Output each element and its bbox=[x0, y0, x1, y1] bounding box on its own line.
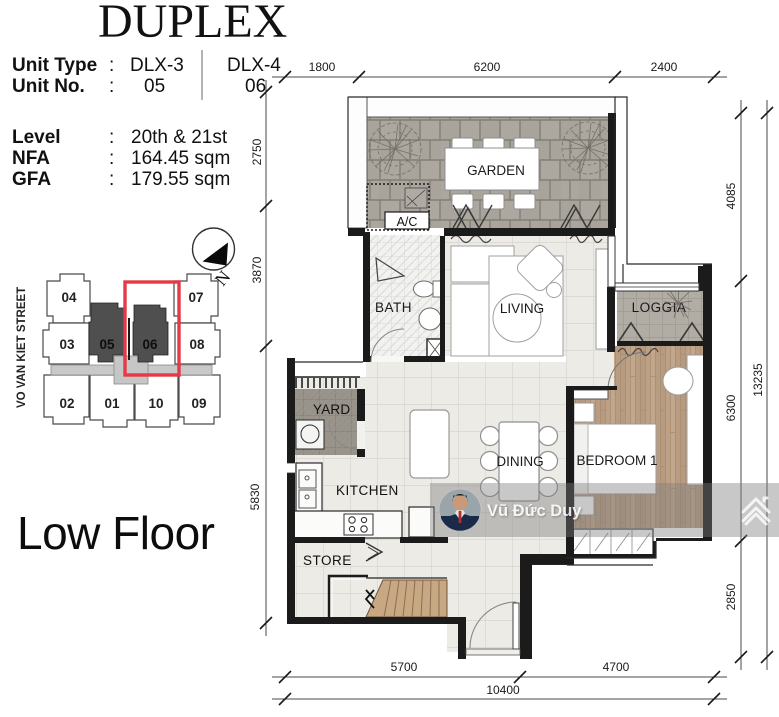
svg-text:13235: 13235 bbox=[751, 363, 765, 397]
svg-text:6200: 6200 bbox=[474, 60, 501, 74]
svg-text:BATH: BATH bbox=[375, 300, 412, 315]
svg-text:2850: 2850 bbox=[724, 583, 738, 610]
svg-text:1800: 1800 bbox=[309, 60, 336, 74]
svg-text:Vũ Đức Duy: Vũ Đức Duy bbox=[487, 502, 582, 520]
svg-text:Unit Type: Unit Type bbox=[12, 55, 97, 76]
svg-text:GARDEN: GARDEN bbox=[467, 163, 525, 178]
svg-text:10400: 10400 bbox=[486, 683, 520, 697]
svg-text:Unit No.: Unit No. bbox=[12, 76, 85, 97]
svg-text:5700: 5700 bbox=[391, 660, 418, 674]
svg-text:Low Floor: Low Floor bbox=[17, 507, 215, 559]
svg-text:02: 02 bbox=[59, 396, 74, 411]
svg-text:NFA: NFA bbox=[12, 148, 50, 169]
svg-text:05: 05 bbox=[144, 76, 165, 97]
svg-text:DLX-3: DLX-3 bbox=[130, 55, 184, 76]
svg-text:20th & 21st: 20th & 21st bbox=[131, 127, 228, 148]
svg-text:4700: 4700 bbox=[603, 660, 630, 674]
svg-text:4085: 4085 bbox=[724, 182, 738, 209]
svg-text:A/C: A/C bbox=[397, 215, 418, 229]
svg-text:164.45 sqm: 164.45 sqm bbox=[131, 148, 230, 169]
svg-text:3870: 3870 bbox=[250, 256, 264, 283]
svg-text:10: 10 bbox=[148, 396, 163, 411]
svg-text:STORE: STORE bbox=[303, 553, 352, 568]
svg-text:07: 07 bbox=[188, 290, 203, 305]
svg-text:08: 08 bbox=[189, 337, 205, 352]
svg-text:09: 09 bbox=[191, 396, 206, 411]
svg-text::: : bbox=[109, 148, 114, 169]
svg-text:05: 05 bbox=[99, 337, 115, 352]
svg-text:GFA: GFA bbox=[12, 169, 51, 190]
svg-text:DINING: DINING bbox=[496, 454, 543, 469]
svg-text::: : bbox=[109, 76, 114, 97]
svg-text:YARD: YARD bbox=[313, 402, 350, 417]
svg-text:179.55 sqm: 179.55 sqm bbox=[131, 169, 230, 190]
svg-text:6300: 6300 bbox=[724, 394, 738, 421]
svg-text::: : bbox=[109, 55, 114, 76]
svg-text:LIVING: LIVING bbox=[500, 301, 544, 316]
svg-text:DLX-4: DLX-4 bbox=[227, 55, 281, 76]
svg-text::: : bbox=[109, 169, 114, 190]
svg-text:2750: 2750 bbox=[250, 138, 264, 165]
svg-text:Level: Level bbox=[12, 127, 61, 148]
svg-text:01: 01 bbox=[104, 396, 120, 411]
svg-text:VO VAN KIET STREET: VO VAN KIET STREET bbox=[16, 287, 28, 408]
svg-text:06: 06 bbox=[142, 337, 158, 352]
svg-text:DUPLEX: DUPLEX bbox=[98, 0, 287, 48]
svg-text:2400: 2400 bbox=[651, 60, 678, 74]
svg-text:BEDROOM 1: BEDROOM 1 bbox=[576, 453, 657, 468]
svg-text::: : bbox=[109, 127, 114, 148]
svg-text:04: 04 bbox=[61, 290, 77, 305]
svg-text:KITCHEN: KITCHEN bbox=[336, 483, 399, 498]
svg-text:06: 06 bbox=[245, 76, 266, 97]
svg-text:03: 03 bbox=[59, 337, 75, 352]
svg-text:5830: 5830 bbox=[248, 483, 262, 510]
